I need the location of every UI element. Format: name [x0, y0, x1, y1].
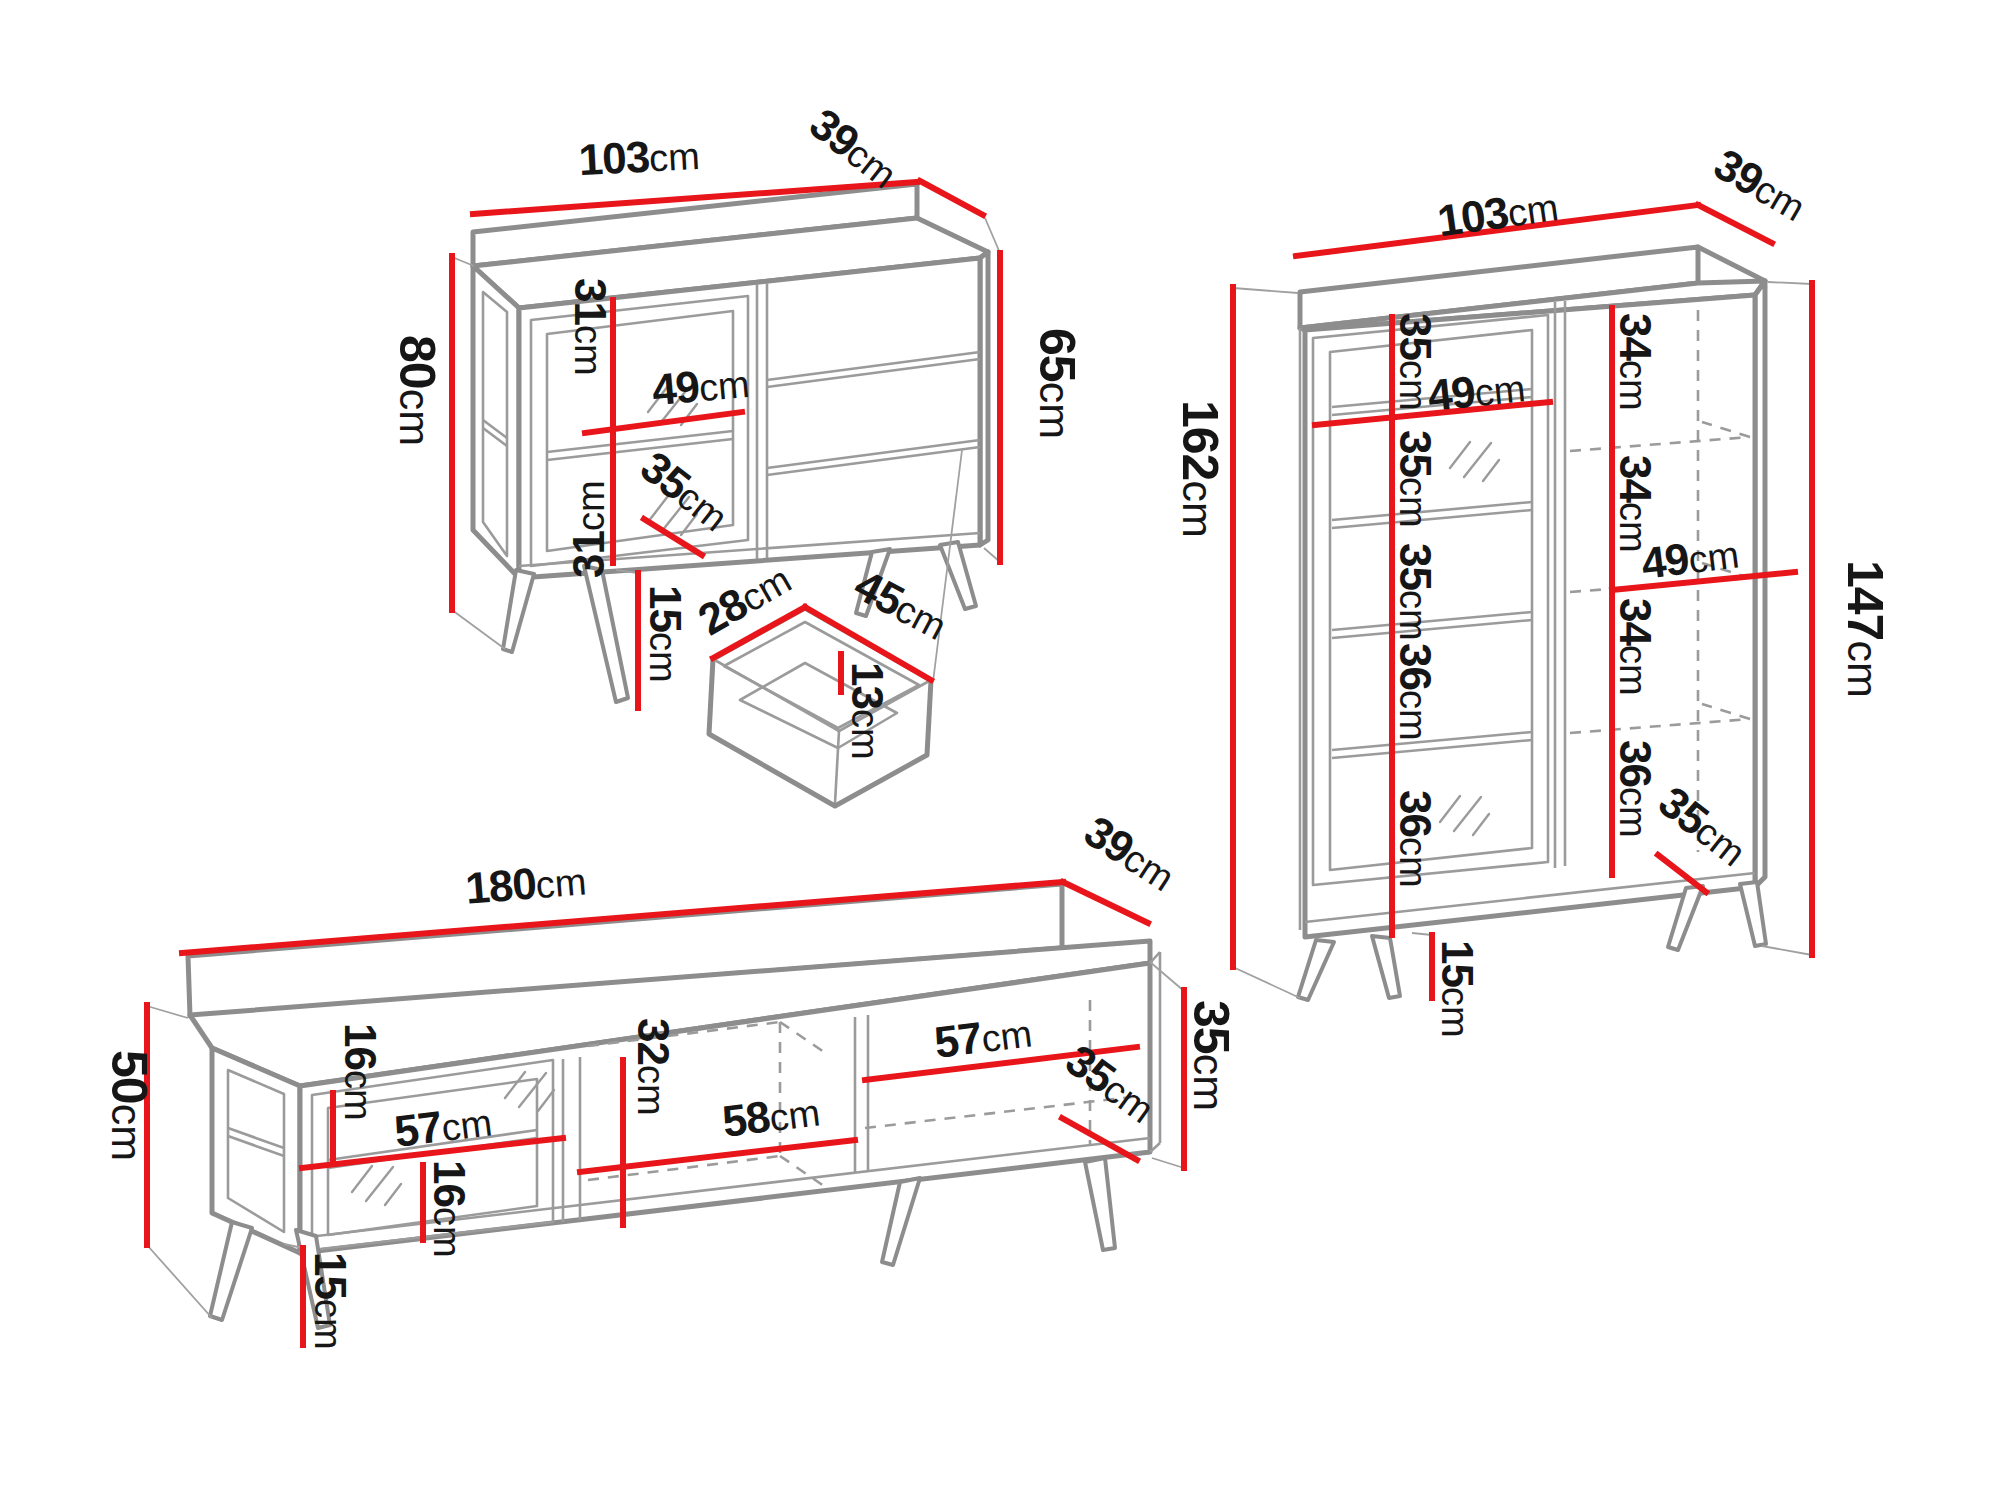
sideboard-lower-compartment-label: 31cm	[564, 480, 613, 578]
tv-stand-leg-height-label: 15cm	[306, 1252, 355, 1350]
tv-stand-lower-compartment-label: 16cm	[425, 1160, 474, 1258]
tv-stand-depth-label: 39cm	[1076, 806, 1185, 900]
tv-stand-height-label: 50cm	[101, 1050, 157, 1161]
sideboard-leg-height-label: 15cm	[641, 585, 690, 683]
cabinet-right-compartment-label: 34cm	[1611, 313, 1660, 411]
cabinet-left-compartment-label: 36cm	[1391, 643, 1440, 741]
cabinet-left-compartment-label: 35cm	[1391, 543, 1440, 641]
cabinet-right-compartment-label: 36cm	[1611, 740, 1660, 838]
tv-stand-body-height-label: 35cm	[1183, 1000, 1239, 1111]
cabinet-leg-height-label: 15cm	[1433, 940, 1482, 1038]
sideboard-body-height-label: 65cm	[1029, 328, 1085, 439]
furniture-dimension-sheet: 103cm 39cm 80cm 65cm 31cm 49cm 31cm 35cm…	[0, 0, 2000, 1500]
tv-stand-middle-height-label: 32cm	[629, 1018, 678, 1116]
cabinet-height-label: 162cm	[1172, 400, 1228, 538]
diagram-canvas: 103cm 39cm 80cm 65cm 31cm 49cm 31cm 35cm…	[0, 0, 2000, 1500]
sideboard-depth-dim	[920, 181, 983, 215]
cabinet-width-label: 103cm	[1434, 180, 1561, 245]
drawer-detail-drawing: 28cm 45cm 13cm	[690, 553, 956, 806]
cabinet-left-compartment-label: 36cm	[1391, 790, 1440, 888]
drawer-width-label: 45cm	[847, 560, 956, 649]
display-cabinet-drawing: 103cm 39cm 162cm 147cm 35cm 35cm 35cm 36…	[1172, 139, 1893, 1038]
sideboard-width-label: 103cm	[577, 129, 700, 184]
cabinet-body-height-label: 147cm	[1837, 560, 1893, 698]
tv-stand-left-side	[212, 1048, 300, 1253]
sideboard-left-side	[473, 266, 519, 578]
tv-stand-upper-compartment-label: 16cm	[336, 1023, 385, 1121]
tv-stand-depth-dim	[1063, 882, 1148, 923]
cabinet-top-right-edge	[1698, 247, 1765, 281]
drawer-box	[709, 608, 931, 806]
tv-stand-drawing: 180cm 39cm 50cm 35cm 16cm 57cm 16cm 32cm…	[101, 806, 1239, 1350]
cabinet-right-compartment-label: 34cm	[1611, 598, 1660, 696]
tv-stand-width-label: 180cm	[463, 854, 588, 913]
drawer-height-label: 13cm	[843, 662, 892, 760]
cabinet-left-compartment-label: 35cm	[1391, 430, 1440, 528]
sideboard-upper-compartment-label: 31cm	[566, 278, 615, 376]
sideboard-height-label: 80cm	[389, 335, 445, 446]
